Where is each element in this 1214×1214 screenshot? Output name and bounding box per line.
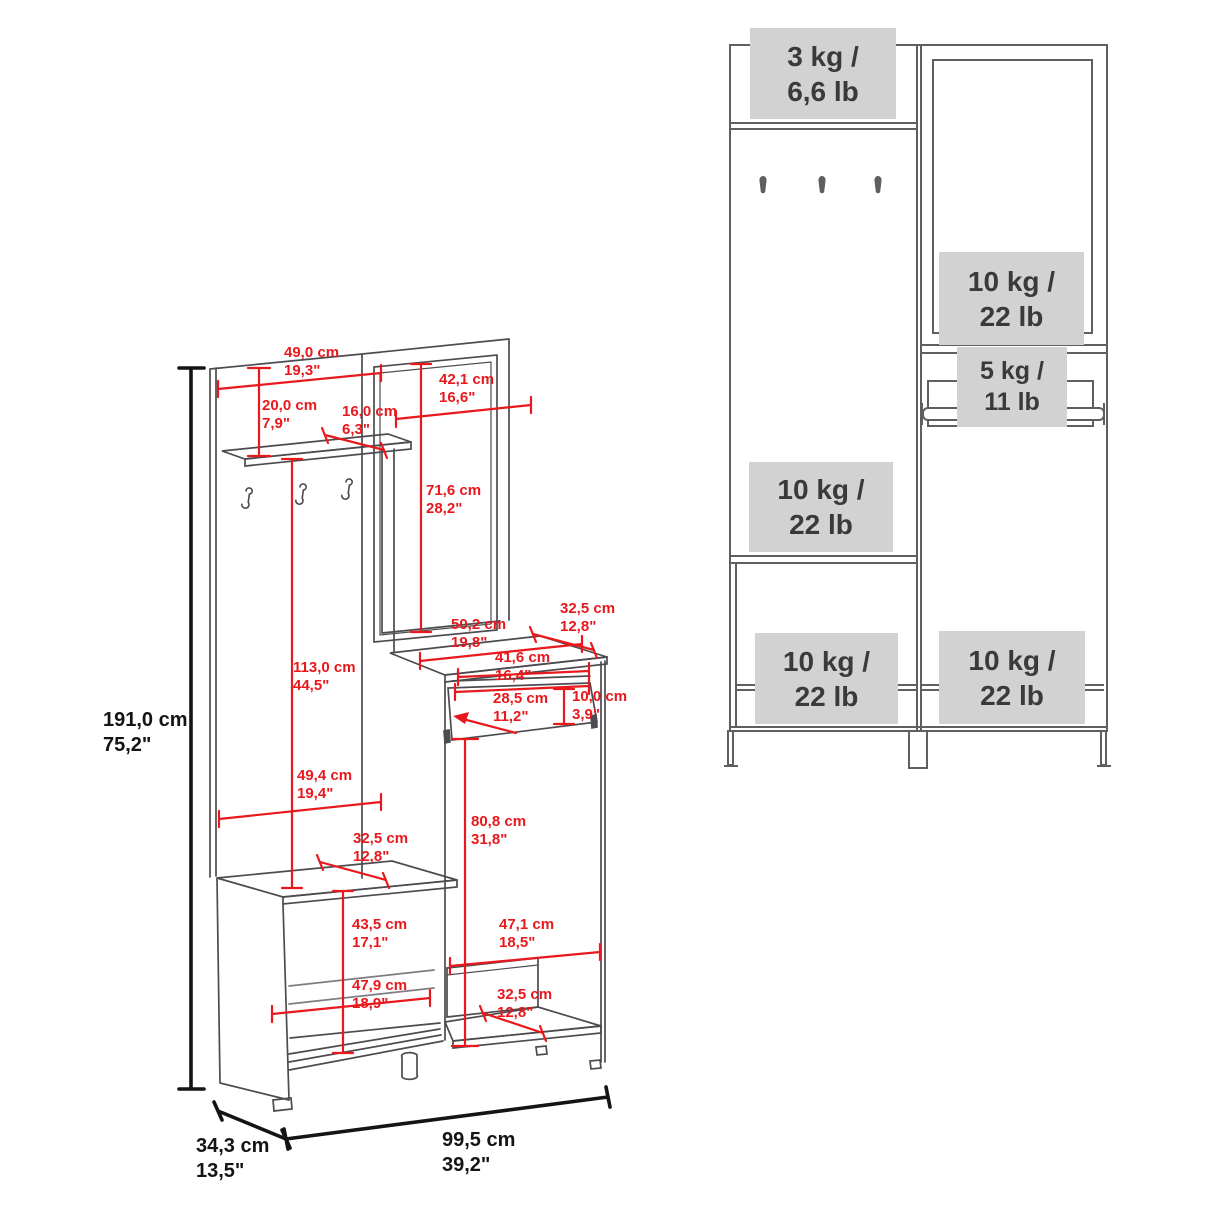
dim-label-cabinet-top-width: 50,2 cm19,8" [451, 616, 506, 651]
dim-label-compartment-width: 41,6 cm16,4" [495, 649, 550, 684]
dim-label-overall-depth: 34,3 cm13,5" [196, 1134, 269, 1184]
top-shelf-line [730, 123, 917, 129]
dim-label-compartment-door-width: 28,5 cm11,2" [493, 690, 548, 725]
dim-label-lower-right-width: 47,1 cm18,5" [499, 916, 554, 951]
leg [402, 1053, 418, 1080]
dim-label-lower-back-width: 47,9 cm18,9" [352, 977, 407, 1012]
capacity-badge-bench: 10 kg /22 lb [749, 462, 893, 552]
capacity-badge-top-shelf: 3 kg /6,6 lb [750, 28, 896, 119]
dim-label-bench-depth: 32,5 cm12,8" [353, 830, 408, 865]
bench [217, 861, 457, 1111]
capacity-badge-hanging-rod: 5 kg /11 lb [957, 347, 1067, 427]
dim-label-bench-clearance: 43,5 cm17,1" [352, 916, 407, 951]
dim-label-shelf-depth: 16,0 cm6,3" [342, 403, 397, 438]
coat-hook-icon [242, 479, 352, 508]
dim-label-cabinet-height: 80,8 cm31,8" [471, 813, 526, 848]
capacity-badge-bottom-right-shelf: 10 kg /22 lb [939, 631, 1085, 724]
coat-hook-icon [760, 177, 881, 193]
blueprint-canvas: 49,0 cm19,3" 20,0 cm7,9" 16,0 cm6,3" 42,… [0, 0, 1214, 1214]
dim-label-cabinet-top-depth: 32,5 cm12,8" [560, 600, 615, 635]
dim-label-panel-height: 113,0 cm44,5" [293, 659, 356, 694]
dim-label-top-panel-width: 49,0 cm19,3" [284, 344, 339, 379]
dim-label-bottom-shelf-depth: 32,5 cm12,8" [497, 986, 552, 1021]
leg [725, 731, 1110, 768]
bench-line [730, 556, 917, 563]
dim-label-total-height: 191,0 cm75,2" [103, 708, 188, 758]
dim-label-mirror-height: 71,6 cm28,2" [426, 482, 481, 517]
dim-label-shelf-drop: 20,0 cm7,9" [262, 397, 317, 432]
capacity-badge-bottom-left-shelf: 10 kg /22 lb [755, 633, 898, 724]
dim-label-overall-width: 99,5 cm39,2" [442, 1128, 515, 1178]
dim-label-bench-width: 49,4 cm19,4" [297, 767, 352, 802]
dim-label-compartment-height: 10,0 cm3,9" [572, 688, 627, 723]
capacity-badge-mirror-cabinet: 10 kg /22 lb [939, 252, 1084, 345]
dim-label-mirror-width: 42,1 cm16,6" [439, 371, 494, 406]
